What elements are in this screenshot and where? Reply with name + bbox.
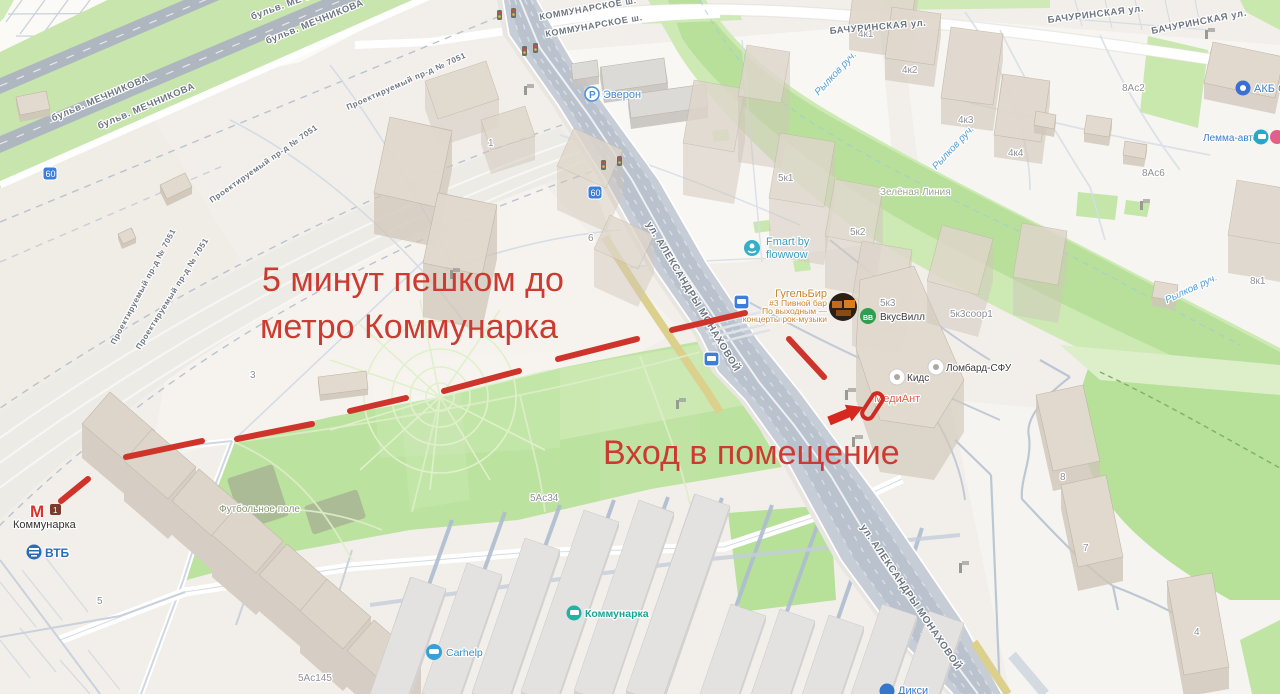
svg-text:ВкусВилл: ВкусВилл	[880, 312, 925, 323]
svg-text:ВВ: ВВ	[863, 315, 873, 322]
svg-text:P: P	[589, 90, 596, 101]
svg-text:flowwow: flowwow	[766, 249, 808, 261]
svg-text:4: 4	[1194, 627, 1200, 638]
svg-text:8: 8	[1060, 472, 1066, 483]
svg-text:5к3соор1: 5к3соор1	[950, 309, 993, 320]
svg-text:Зелёная Линия: Зелёная Линия	[880, 187, 951, 198]
svg-text:6: 6	[588, 233, 594, 244]
svg-text:концерты рок-музыки: концерты рок-музыки	[743, 314, 828, 324]
svg-text:7: 7	[1083, 543, 1089, 554]
svg-text:5Ас145: 5Ас145	[298, 673, 332, 684]
svg-text:Вход в помещение: Вход в помещение	[603, 434, 900, 472]
svg-text:60: 60	[591, 188, 601, 198]
svg-text:8Ас2: 8Ас2	[1122, 83, 1145, 94]
svg-text:Коммунарка: Коммунарка	[585, 608, 649, 620]
svg-text:3: 3	[250, 370, 256, 381]
svg-text:4к4: 4к4	[1008, 148, 1024, 159]
svg-text:метро Коммунарка: метро Коммунарка	[260, 308, 558, 346]
svg-text:60: 60	[46, 169, 56, 179]
svg-text:5к3: 5к3	[880, 298, 896, 309]
svg-text:ВТБ: ВТБ	[45, 546, 70, 560]
svg-text:Дикси: Дикси	[898, 685, 928, 694]
svg-text:Коммунарка: Коммунарка	[13, 519, 77, 531]
svg-text:4к3: 4к3	[958, 115, 974, 126]
svg-text:Кидс: Кидс	[907, 373, 929, 384]
svg-text:1: 1	[53, 506, 58, 515]
svg-text:Эверон: Эверон	[603, 89, 641, 101]
svg-text:АКБ Се: АКБ Се	[1254, 83, 1280, 95]
svg-text:4к1: 4к1	[858, 29, 874, 40]
svg-text:1: 1	[488, 138, 494, 149]
svg-text:5: 5	[97, 596, 103, 607]
svg-text:Ломбард-СФУ: Ломбард-СФУ	[946, 362, 1012, 374]
svg-text:Футбольное поле: Футбольное поле	[219, 503, 300, 515]
svg-text:Carhelp: Carhelp	[446, 647, 483, 659]
svg-text:5 минут пешком до: 5 минут пешком до	[262, 261, 564, 299]
svg-text:5Ас34: 5Ас34	[530, 493, 559, 504]
svg-text:Лемма-авто: Лемма-авто	[1203, 133, 1259, 144]
svg-text:5к2: 5к2	[850, 227, 866, 238]
svg-text:5к1: 5к1	[778, 173, 794, 184]
svg-text:8к1: 8к1	[1250, 276, 1266, 287]
svg-text:4к2: 4к2	[902, 65, 918, 76]
svg-text:Fmart by: Fmart by	[766, 236, 810, 248]
svg-text:8Ас6: 8Ас6	[1142, 168, 1165, 179]
